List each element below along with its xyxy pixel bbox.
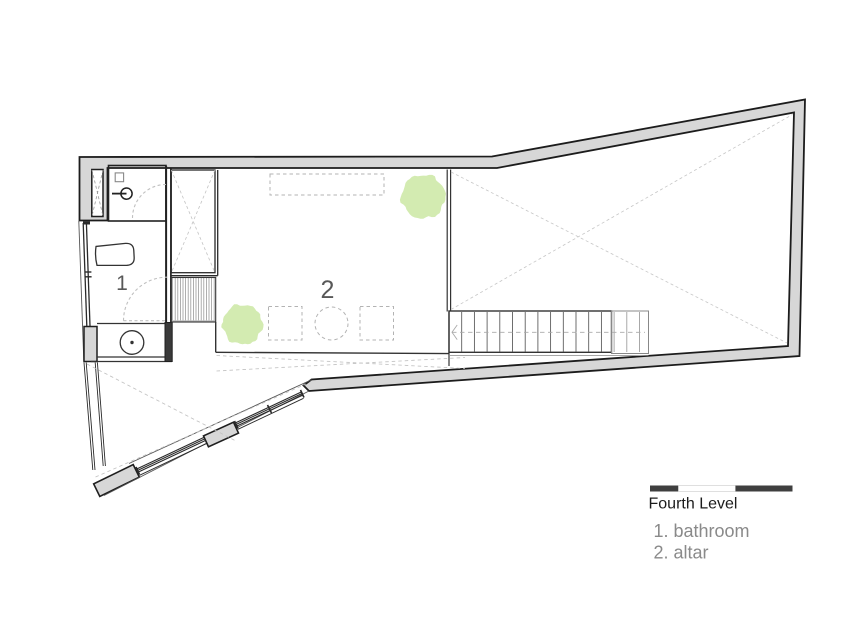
svg-text:2. altar: 2. altar [654, 543, 709, 563]
svg-text:2: 2 [321, 276, 335, 304]
svg-text:1: 1 [116, 272, 128, 295]
svg-text:Fourth Level: Fourth Level [649, 496, 738, 513]
svg-text:1. bathroom: 1. bathroom [654, 521, 750, 541]
